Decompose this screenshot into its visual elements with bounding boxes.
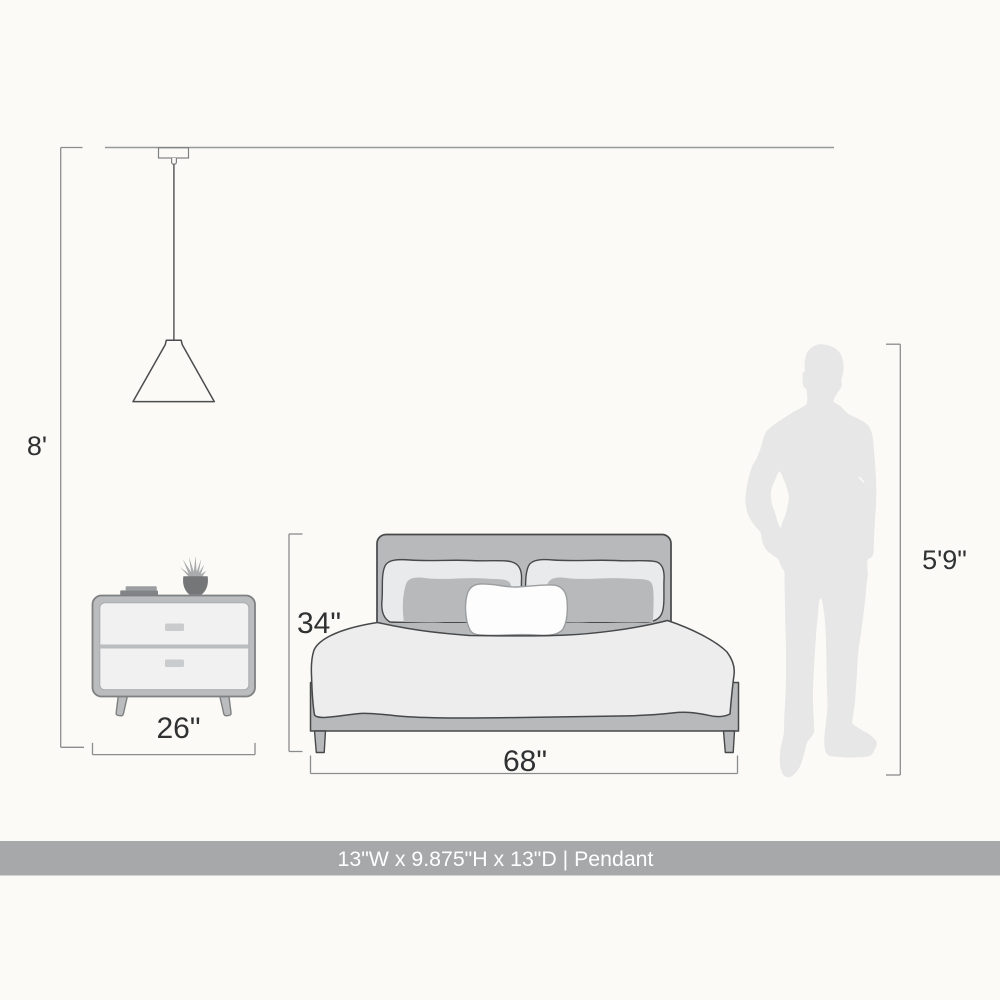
svg-text:26": 26" (156, 712, 200, 745)
svg-text:5'9": 5'9" (922, 545, 967, 575)
svg-text:8': 8' (27, 431, 47, 461)
svg-text:13"W x 9.875"H x 13"D | Pendan: 13"W x 9.875"H x 13"D | Pendant (338, 847, 654, 871)
svg-text:68": 68" (503, 745, 547, 778)
